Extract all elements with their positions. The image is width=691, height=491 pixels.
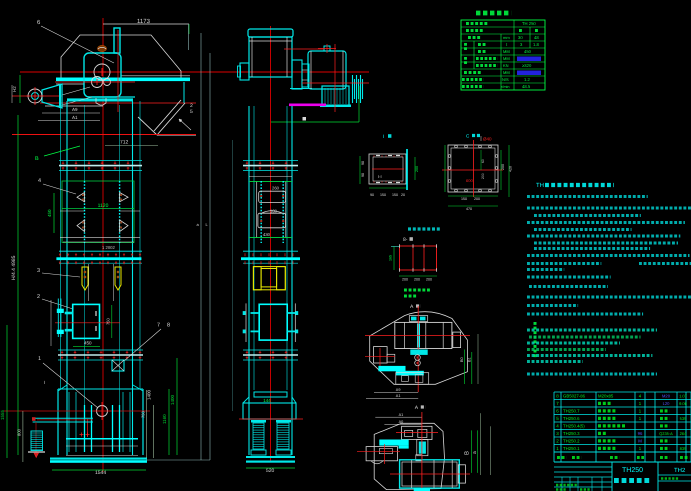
svg-text:450: 450 (47, 209, 52, 217)
svg-text:7: 7 (157, 323, 160, 329)
svg-text:I-I: I-I (378, 174, 382, 179)
svg-text:200: 200 (402, 278, 408, 282)
svg-text:8: 8 (167, 323, 170, 329)
svg-text:1120: 1120 (98, 203, 109, 209)
svg-text:420: 420 (509, 166, 513, 172)
svg-text:N/S: N/S (502, 77, 509, 82)
svg-text:H2: H2 (12, 86, 17, 92)
svg-text:835: 835 (680, 446, 687, 451)
svg-text:3: 3 (37, 268, 40, 274)
svg-text:1400: 1400 (147, 389, 152, 400)
svg-text:M: M (638, 438, 642, 443)
svg-text:I: I (44, 380, 45, 385)
svg-text:TH: TH (536, 182, 544, 189)
svg-text:1: 1 (38, 356, 41, 362)
svg-text:Q235-A: Q235-A (659, 431, 673, 436)
svg-text:MM: MM (503, 56, 510, 61)
svg-text:I: I (383, 134, 384, 140)
svg-text:430: 430 (263, 232, 271, 237)
svg-text:96: 96 (638, 431, 643, 436)
svg-text:TH250.3: TH250.3 (563, 431, 580, 436)
svg-text:4: 4 (38, 178, 41, 184)
svg-text:TH250.1: TH250.1 (563, 446, 580, 451)
svg-text:≥320: ≥320 (522, 63, 532, 68)
svg-text:5: 5 (190, 109, 193, 115)
svg-text:A9: A9 (396, 388, 401, 392)
svg-text:30: 30 (518, 35, 523, 40)
svg-text:1555: 1555 (0, 409, 5, 420)
svg-text:9.06: 9.06 (679, 401, 688, 406)
svg-text:B: B (35, 156, 39, 162)
svg-text:A9: A9 (72, 107, 78, 112)
svg-text:TH 250: TH 250 (522, 21, 536, 26)
svg-text:144: 144 (263, 398, 271, 403)
svg-text:1544: 1544 (95, 470, 106, 476)
svg-text:750: 750 (141, 411, 146, 418)
svg-text:264: 264 (680, 431, 687, 436)
svg-text:520: 520 (266, 468, 275, 474)
svg-text:712: 712 (120, 140, 129, 146)
svg-text:H/4.4 4985: H/4.4 4985 (11, 255, 17, 280)
svg-text:B1: B1 (468, 357, 472, 362)
svg-text:150: 150 (392, 193, 398, 197)
svg-text:TH250.6: TH250.6 (563, 416, 580, 421)
svg-text:TH250: TH250 (622, 467, 643, 474)
svg-text:8-: 8- (403, 237, 408, 243)
svg-text:a: a (472, 451, 478, 454)
svg-text:MM: MM (503, 70, 510, 75)
svg-text:2: 2 (37, 294, 40, 300)
svg-text:20: 20 (401, 193, 405, 197)
svg-text:200: 200 (501, 164, 505, 170)
svg-text:200: 200 (481, 173, 485, 179)
svg-text:600: 600 (466, 178, 473, 183)
svg-text:TH2: TH2 (674, 467, 686, 474)
svg-text:470: 470 (466, 207, 472, 211)
svg-text:98: 98 (361, 173, 365, 177)
svg-text:A1: A1 (72, 115, 78, 120)
svg-text:A1: A1 (396, 394, 401, 398)
svg-text:TH250.4(5): TH250.4(5) (563, 423, 585, 428)
svg-text:200: 200 (426, 278, 432, 282)
svg-text:TH250.2: TH250.2 (563, 438, 580, 443)
svg-text:A1: A1 (399, 413, 404, 417)
svg-text:Ø40: Ø40 (483, 137, 492, 142)
svg-text:800: 800 (17, 428, 22, 436)
svg-text:1 2002: 1 2002 (102, 245, 115, 250)
svg-text:535: 535 (680, 416, 687, 421)
svg-text:200: 200 (415, 166, 419, 172)
svg-text:B0: B0 (460, 357, 464, 362)
svg-text:B: B (464, 451, 471, 455)
svg-text:200: 200 (474, 197, 480, 201)
svg-text:200: 200 (414, 278, 420, 282)
svg-text:98: 98 (361, 161, 365, 165)
svg-text:GB5027-86: GB5027-86 (563, 393, 586, 398)
svg-text:90: 90 (370, 193, 374, 197)
svg-text:450: 450 (84, 341, 92, 346)
svg-text:1.07: 1.07 (679, 393, 688, 398)
svg-text:L20: L20 (663, 401, 671, 406)
svg-text:r/min: r/min (501, 85, 509, 89)
svg-text:165: 165 (389, 255, 393, 261)
svg-text:1173: 1173 (137, 18, 151, 25)
svg-text:750: 750 (106, 318, 111, 325)
svg-text:TH250.7: TH250.7 (563, 408, 580, 413)
svg-text:mm: mm (503, 35, 510, 40)
svg-text:1.8: 1.8 (533, 42, 539, 47)
svg-text:M20: M20 (662, 393, 671, 398)
svg-text:KN: KN (503, 63, 509, 68)
svg-text:260: 260 (272, 186, 280, 191)
svg-text:48: 48 (534, 35, 539, 40)
svg-text:1400: 1400 (170, 394, 175, 405)
svg-text:1.2: 1.2 (524, 77, 530, 82)
svg-text:150: 150 (380, 193, 386, 197)
svg-text:60: 60 (481, 159, 485, 163)
svg-text:150: 150 (461, 197, 467, 201)
svg-text:48.5: 48.5 (522, 84, 531, 89)
svg-text:450: 450 (524, 49, 532, 54)
svg-text:M20x85: M20x85 (598, 393, 614, 398)
svg-text:1160: 1160 (162, 414, 167, 424)
svg-text:180: 180 (270, 208, 278, 213)
svg-text:MM: MM (503, 49, 510, 54)
